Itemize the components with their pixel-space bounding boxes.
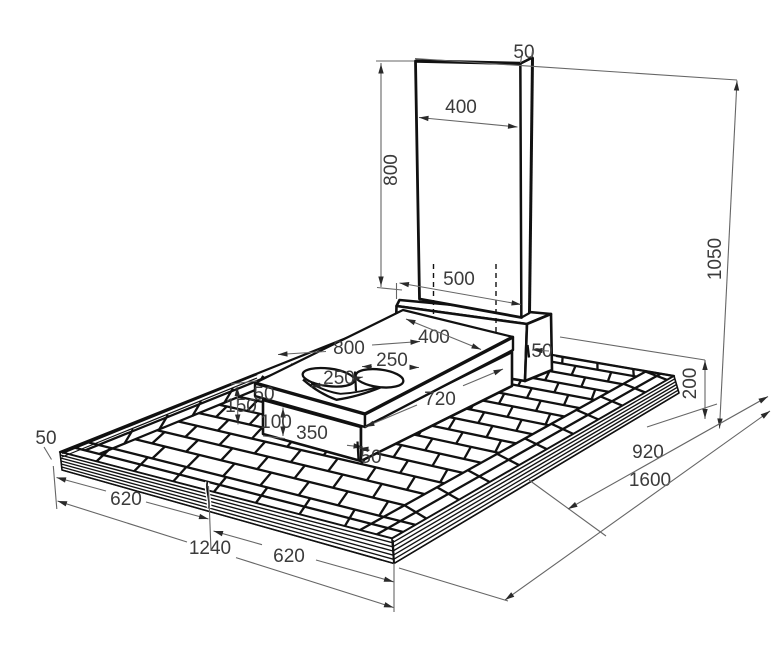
svg-text:200: 200 bbox=[680, 368, 701, 400]
svg-text:50: 50 bbox=[513, 42, 534, 63]
svg-text:800: 800 bbox=[333, 338, 365, 359]
svg-text:50: 50 bbox=[253, 384, 274, 405]
svg-text:620: 620 bbox=[110, 489, 142, 510]
svg-text:100: 100 bbox=[260, 412, 292, 433]
svg-text:1050: 1050 bbox=[705, 238, 726, 280]
svg-text:920: 920 bbox=[632, 442, 664, 463]
svg-text:250: 250 bbox=[376, 350, 408, 371]
svg-text:400: 400 bbox=[445, 97, 477, 118]
svg-text:1240: 1240 bbox=[189, 538, 231, 559]
svg-text:800: 800 bbox=[381, 154, 402, 186]
svg-text:350: 350 bbox=[296, 423, 328, 444]
svg-text:150: 150 bbox=[225, 396, 257, 417]
svg-text:720: 720 bbox=[424, 389, 456, 410]
svg-text:500: 500 bbox=[443, 269, 475, 290]
svg-text:1600: 1600 bbox=[629, 470, 671, 491]
svg-text:620: 620 bbox=[273, 546, 305, 567]
svg-text:250: 250 bbox=[323, 368, 355, 389]
svg-text:50: 50 bbox=[35, 428, 56, 449]
